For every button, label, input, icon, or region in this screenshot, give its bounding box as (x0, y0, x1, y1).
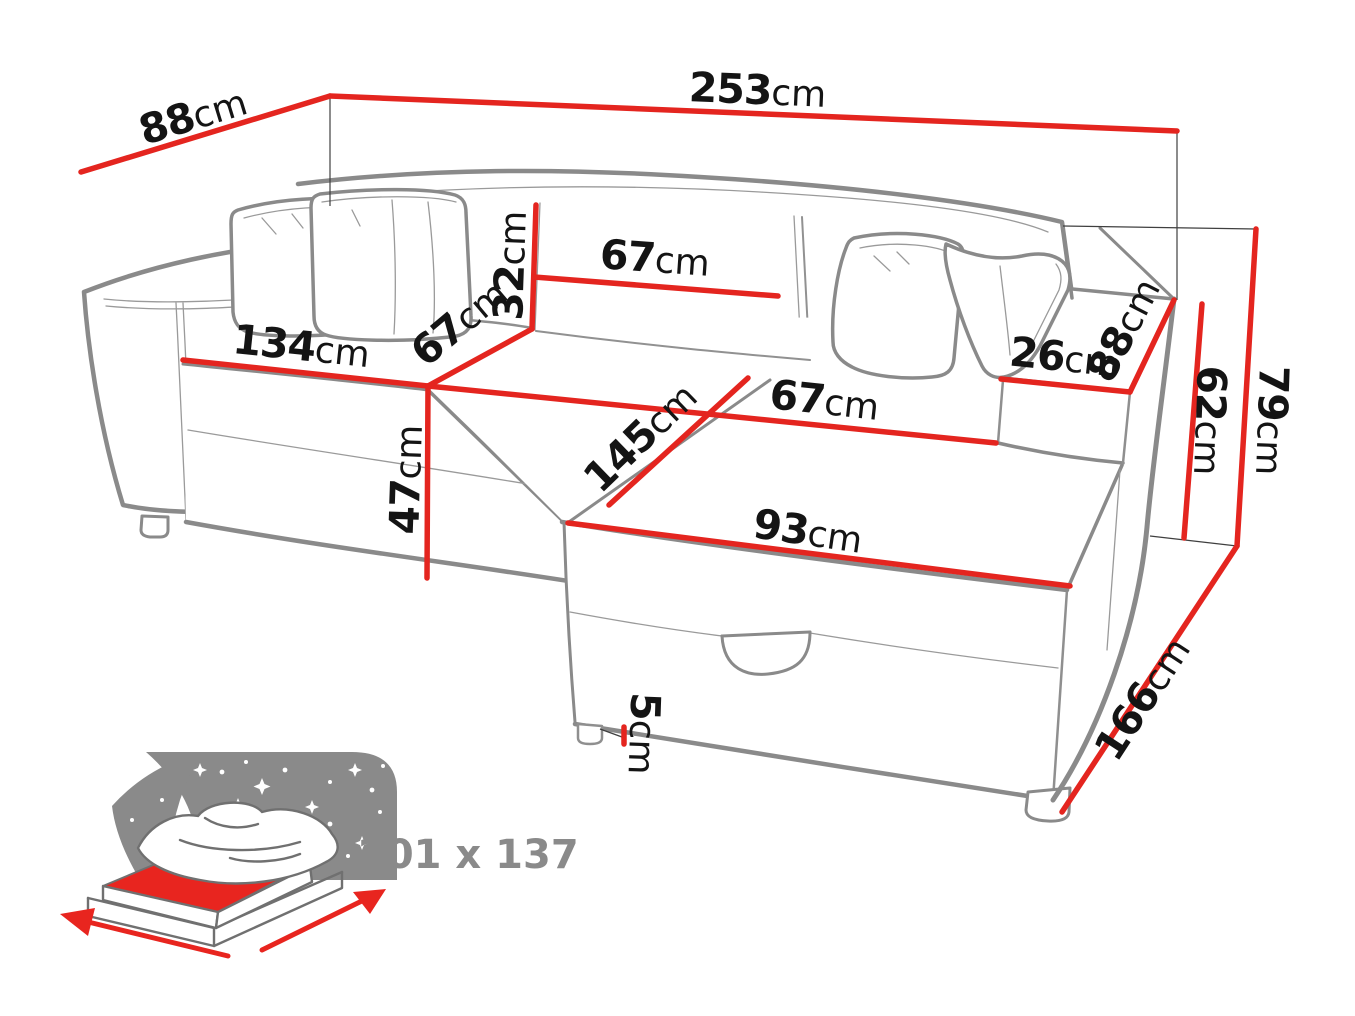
sofa-drawing: 253cm 88cm 32cm 67cm 134cm 67cm 47cm 67c… (81, 63, 1298, 821)
dim-label-height-total: 79cm (1246, 365, 1298, 477)
dim-label-depth-right: 166cm (1085, 628, 1200, 769)
dim-label-leg-height: 5cm (619, 691, 670, 775)
armrest-leg (141, 516, 168, 537)
sleeping-area-icon: 201 x 137 (60, 752, 579, 956)
dim-label-armrest-height: 62cm (1184, 365, 1236, 477)
width-arrow (262, 896, 372, 950)
dim-label-depth-back-left: 88cm (133, 77, 252, 155)
sofa-dimension-diagram: 253cm 88cm 32cm 67cm 134cm 67cm 47cm 67c… (0, 0, 1355, 1016)
ottoman-leg-left (578, 724, 602, 744)
dim-label-width-total: 253cm (688, 63, 827, 117)
sleeping-area-size: 201 x 137 (358, 832, 579, 878)
